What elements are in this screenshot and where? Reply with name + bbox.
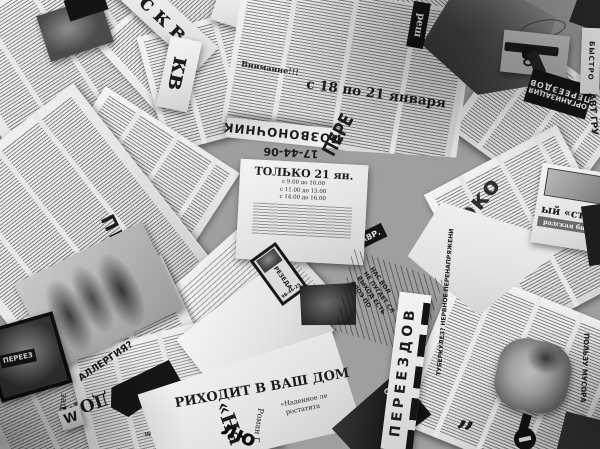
newspaper-collage-photo: осква кв Внимание!!! с 18 по 21 января П… xyxy=(0,0,600,449)
tolko21-ad-scrap: ТОЛЬКО 21 ян. с 9.00 до 10.00 с 11.00 до… xyxy=(235,159,368,266)
schedule-line: с 14.00 до 16.00 xyxy=(279,195,326,203)
phone-upside-down: 17-44-06 xyxy=(252,144,331,161)
body-text-texture xyxy=(246,201,358,241)
rezeda-name: РЕЗЕДА xyxy=(272,265,293,290)
no-entry-icon xyxy=(514,428,536,449)
mini-ad-photo xyxy=(544,168,600,205)
label-avt-gru: АВТ ГРУ xyxy=(583,95,600,132)
label-polzu-musora: ПОЛЬЗУ МУСОРА xyxy=(572,336,595,401)
no-entry-bar xyxy=(519,436,532,442)
label-bystro: БЫСТРО xyxy=(580,28,600,95)
